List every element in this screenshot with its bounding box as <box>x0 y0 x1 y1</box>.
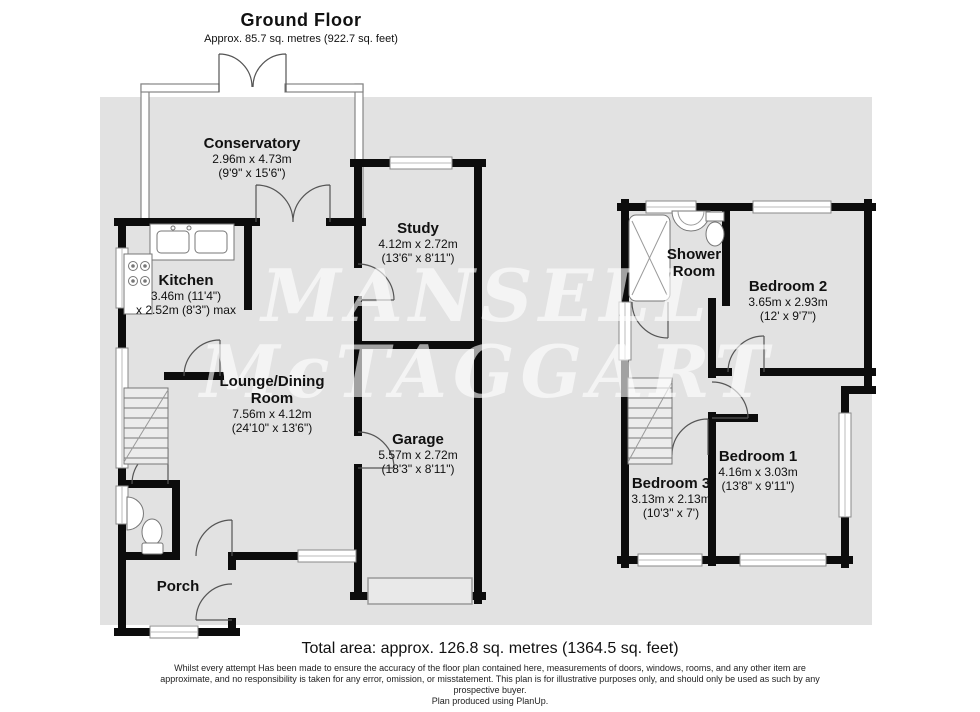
shower-room-cistern <box>706 212 724 221</box>
room-label-study: Study 4.12m x 2.72m (13'6" x 8'11") <box>378 220 457 265</box>
kitchen-sink-unit <box>150 224 234 260</box>
stairs-ground <box>124 388 168 464</box>
floorplan-page: MANSELL McTAGGART Ground Floor Approx. 8… <box>0 0 980 712</box>
room-label-shower-room: Shower Room <box>667 246 721 280</box>
room-label-garage: Garage 5.57m x 2.72m (18'3" x 8'11") <box>378 431 457 476</box>
room-label-conservatory: Conservatory 2.96m x 4.73m (9'9" x 15'6"… <box>204 135 301 180</box>
room-label-bedroom1: Bedroom 1 4.16m x 3.03m (13'8" x 9'11") <box>718 448 797 493</box>
floorplan-graphics <box>0 0 980 712</box>
garage-door <box>368 578 472 604</box>
stairs-first <box>628 378 672 464</box>
room-label-lounge: Lounge/Dining Room 7.56m x 4.12m (24'10"… <box>220 373 325 435</box>
toilet-bowl <box>142 519 162 545</box>
room-label-bedroom2: Bedroom 2 3.65m x 2.93m (12' x 9'7") <box>748 278 827 323</box>
room-label-porch: Porch <box>157 578 200 595</box>
room-label-bedroom3: Bedroom 3 3.13m x 2.13m (10'3" x 7') <box>631 475 710 520</box>
room-label-kitchen: Kitchen 3.46m (11'4") x 2.52m (8'3") max <box>136 272 236 317</box>
toilet-cistern <box>142 543 163 554</box>
shower-room-toilet <box>706 222 724 246</box>
